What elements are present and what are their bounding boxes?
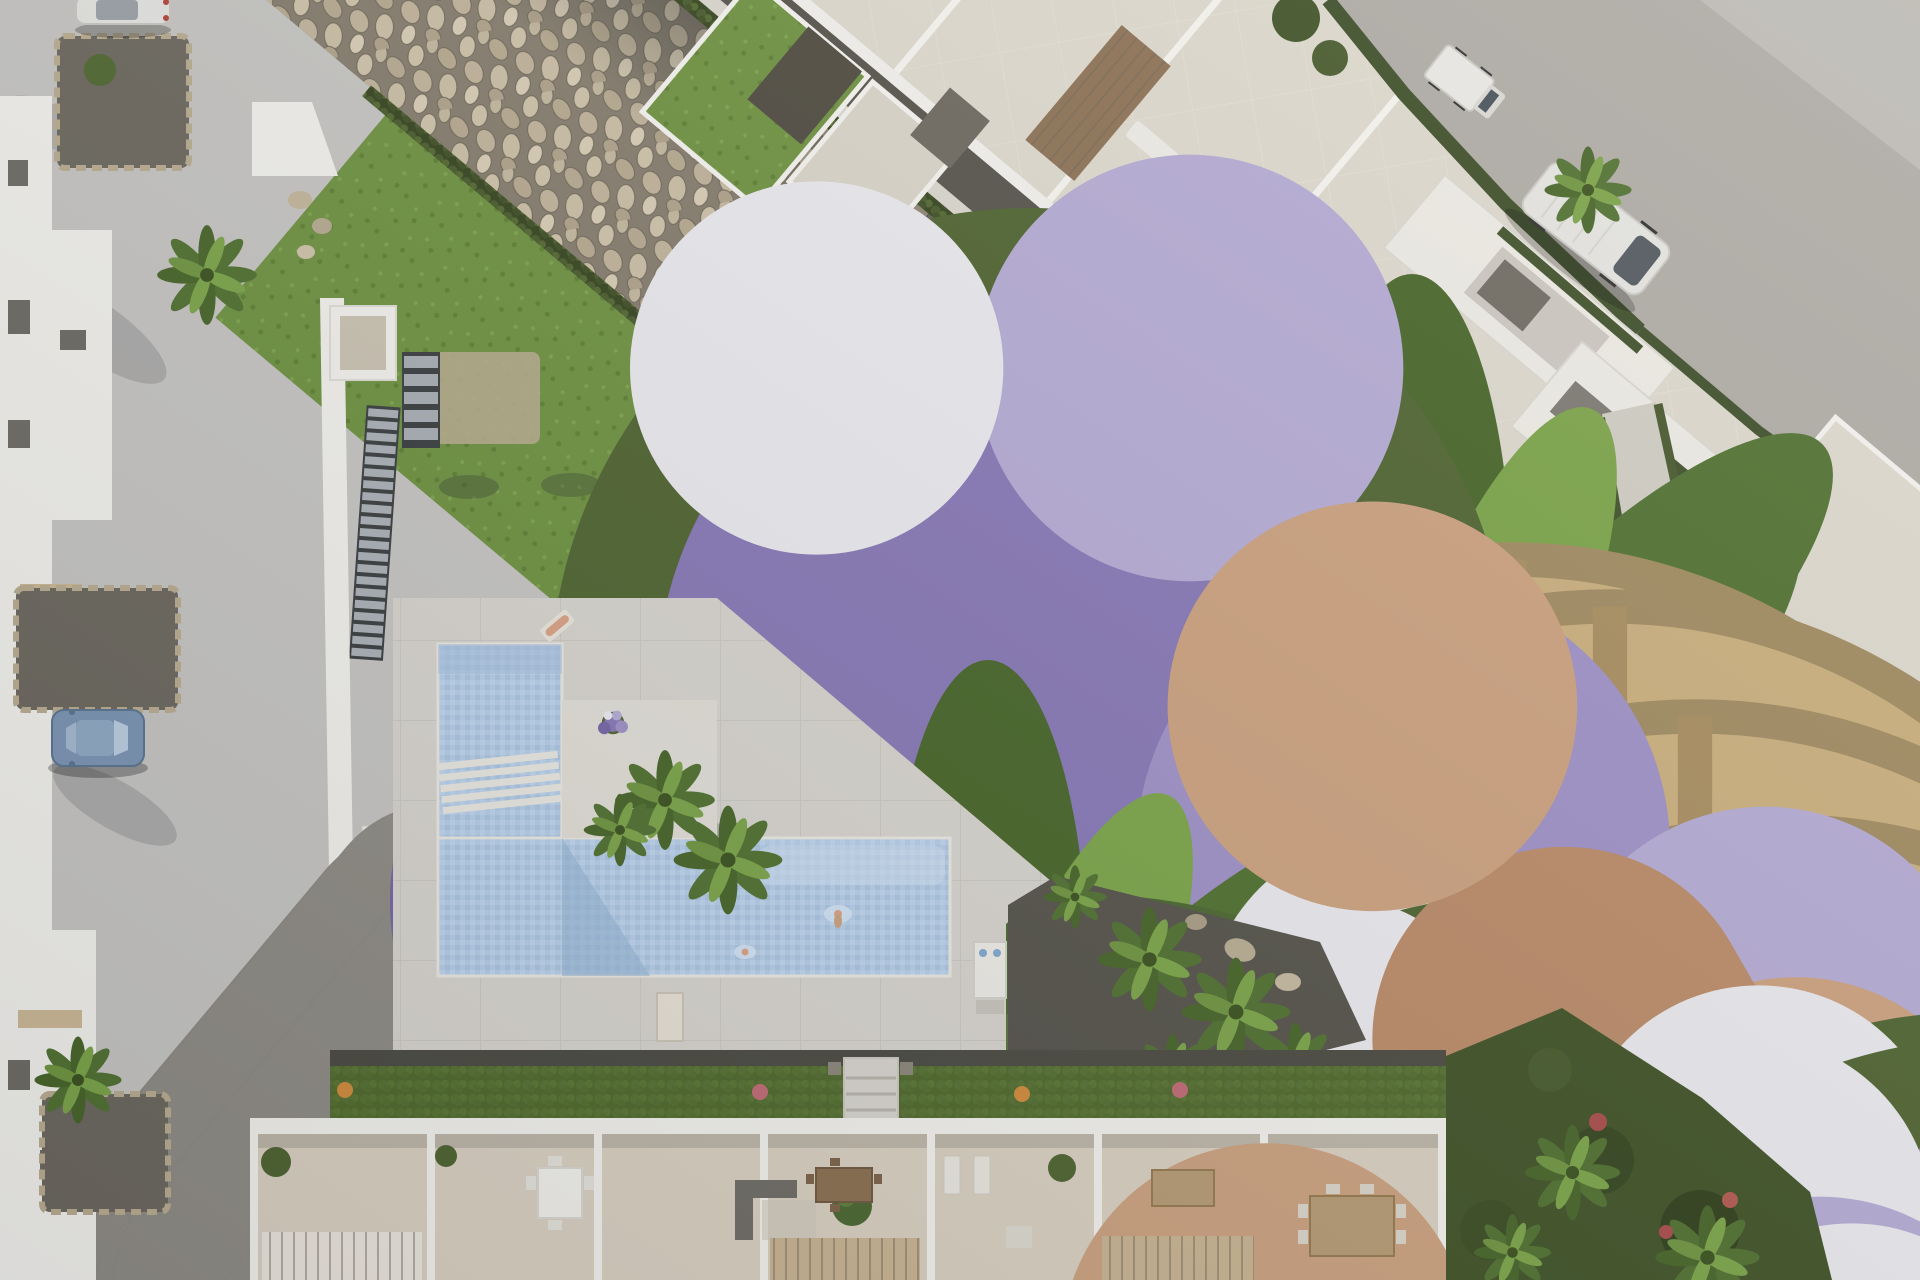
sunlight-overlay — [0, 0, 1920, 1280]
aerial-render — [0, 0, 1920, 1280]
